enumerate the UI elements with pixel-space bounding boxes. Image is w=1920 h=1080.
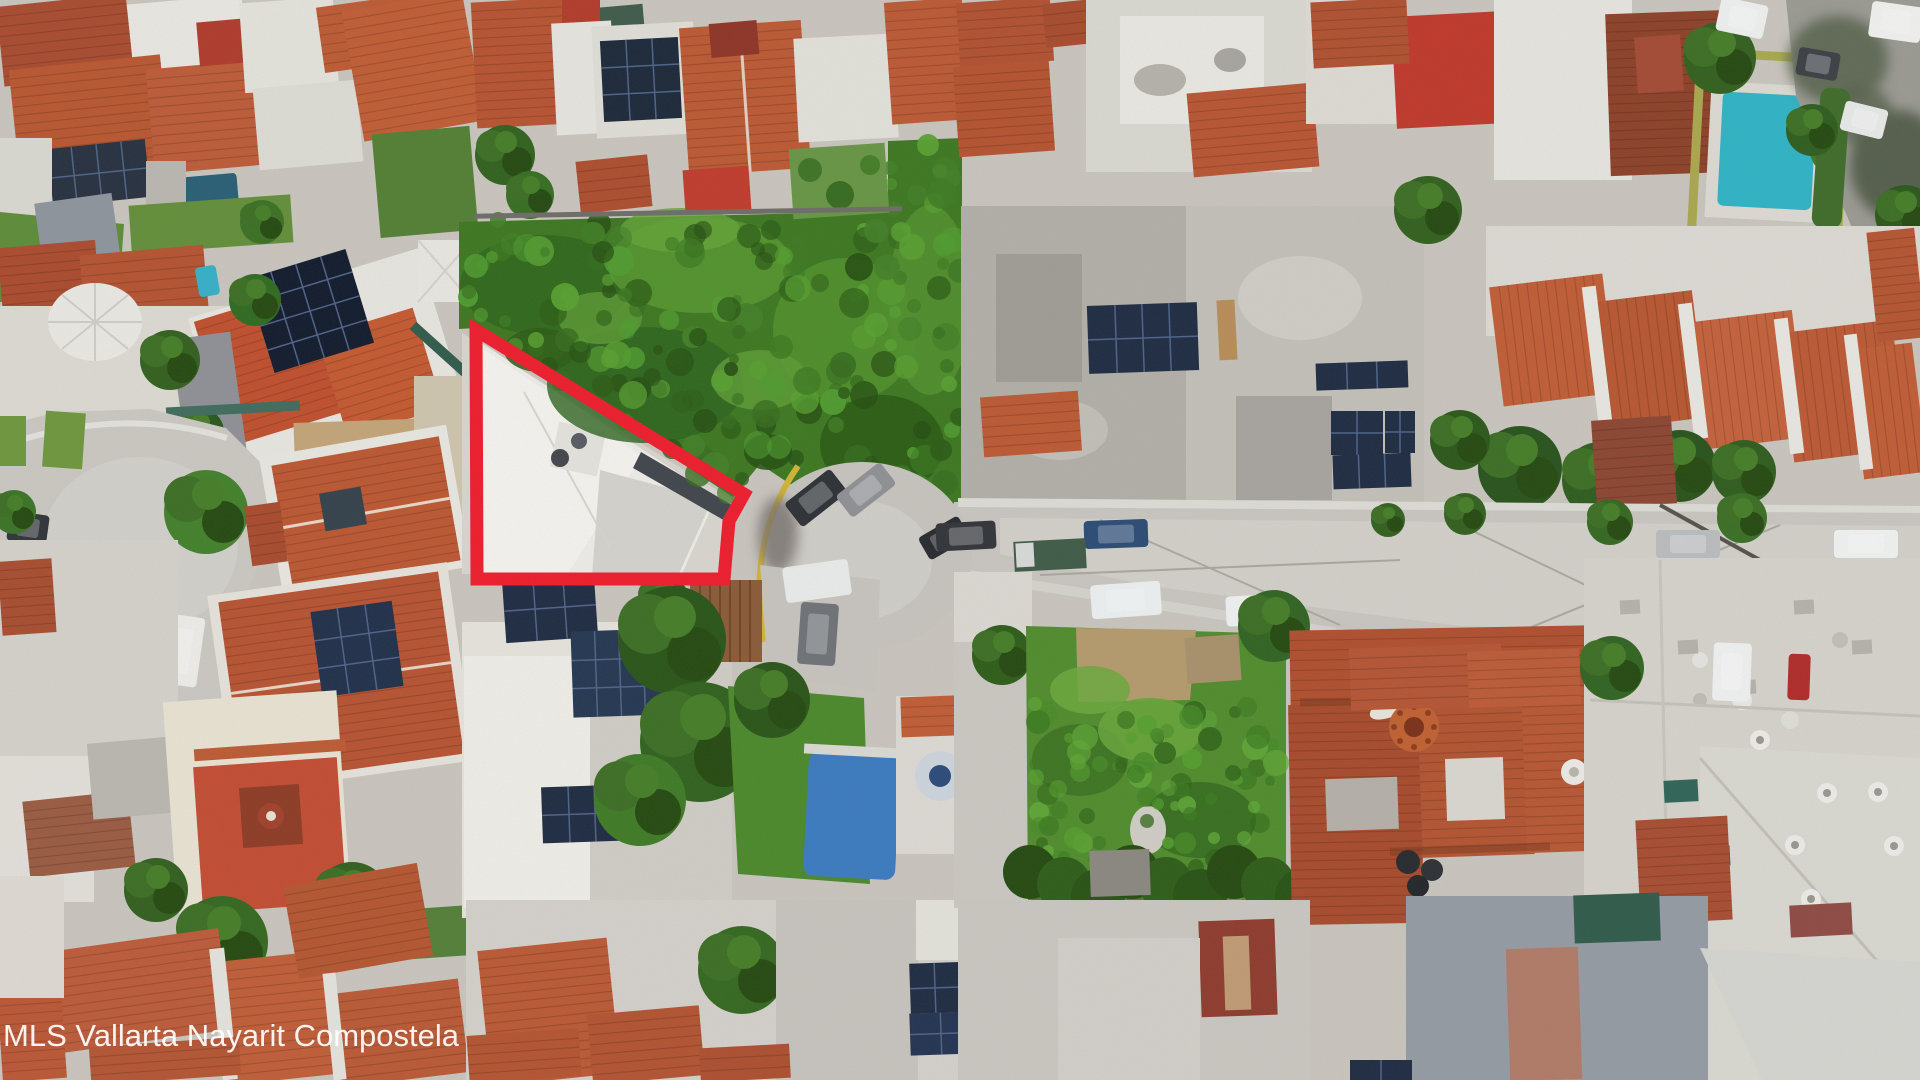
svg-text:MLS Vallarta Nayarit Compostel: MLS Vallarta Nayarit Compostela: [3, 1018, 460, 1053]
